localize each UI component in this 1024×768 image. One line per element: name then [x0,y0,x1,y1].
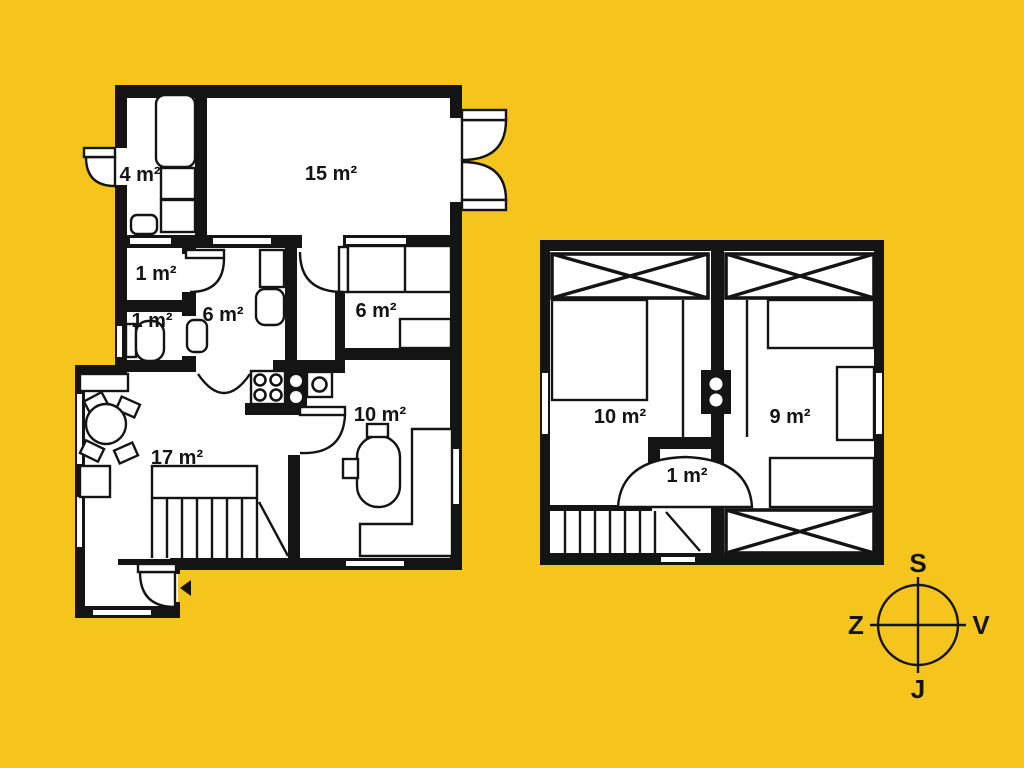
window [76,496,83,548]
wall [335,348,462,360]
sideboard [80,374,128,391]
desk [400,319,451,348]
wall [178,558,462,570]
window [129,237,172,245]
door-opening [288,415,300,455]
cabinet [80,466,110,497]
chimney [285,371,307,408]
wall [285,245,297,372]
door-opening [302,235,343,248]
room-label-room6: 6 m² [355,300,396,322]
french-doors [462,110,506,210]
bed [156,95,195,167]
room-label-upper9: 9 m² [769,406,810,428]
wall [115,360,196,372]
stove [251,371,285,404]
wall [195,97,207,238]
compass-south-label: J [911,674,925,704]
room-label-kitchen: 6 m² [202,304,243,326]
room-label-room10: 10 m² [354,404,407,426]
compass-east-label: V [972,610,990,640]
dining-table [86,404,126,444]
chimney [701,370,731,414]
bed [770,458,874,507]
bed [348,246,451,292]
window [345,560,405,567]
room-label-hall: 4 m² [119,164,160,186]
room-label-living: 17 m² [151,447,204,469]
cabinet [161,200,195,232]
compass-west-label: Z [848,610,864,640]
sink [131,215,157,234]
compass-north-label: S [909,548,926,578]
cabinet [161,168,195,199]
window [116,325,123,358]
entrance-arrow-icon [180,580,191,596]
compass: S V J Z [848,548,990,704]
room-label-upper10: 10 m² [594,406,647,428]
entry-door-hall [84,148,115,186]
upper-floor-plan: 10 m² 9 m² 1 m² [540,240,884,565]
room-label-closet: 1 m² [135,263,176,285]
room-label-wc: 1 m² [131,310,172,332]
window [875,372,883,435]
window [345,237,407,245]
wall [115,85,127,148]
small-sink [307,372,332,397]
door-opening [450,118,462,202]
kitchen-counter [260,250,284,287]
cabinet [837,367,874,440]
kitchen-sink-unit [256,289,284,325]
door-opening [182,254,196,292]
window [660,556,696,563]
room-label-room15: 15 m² [305,163,358,185]
floor-plan-canvas: 4 m² 15 m² 1 m² 1 m² 6 m² 6 m² 10 m² 17 … [0,0,1024,768]
window [92,609,152,616]
window [212,237,272,245]
ground-floor-plan: 4 m² 15 m² 1 m² 1 m² 6 m² 6 m² 10 m² 17 … [75,85,506,618]
bed [552,300,647,400]
window [541,372,549,435]
room-label-landing: 1 m² [666,465,707,487]
bed [768,300,874,348]
